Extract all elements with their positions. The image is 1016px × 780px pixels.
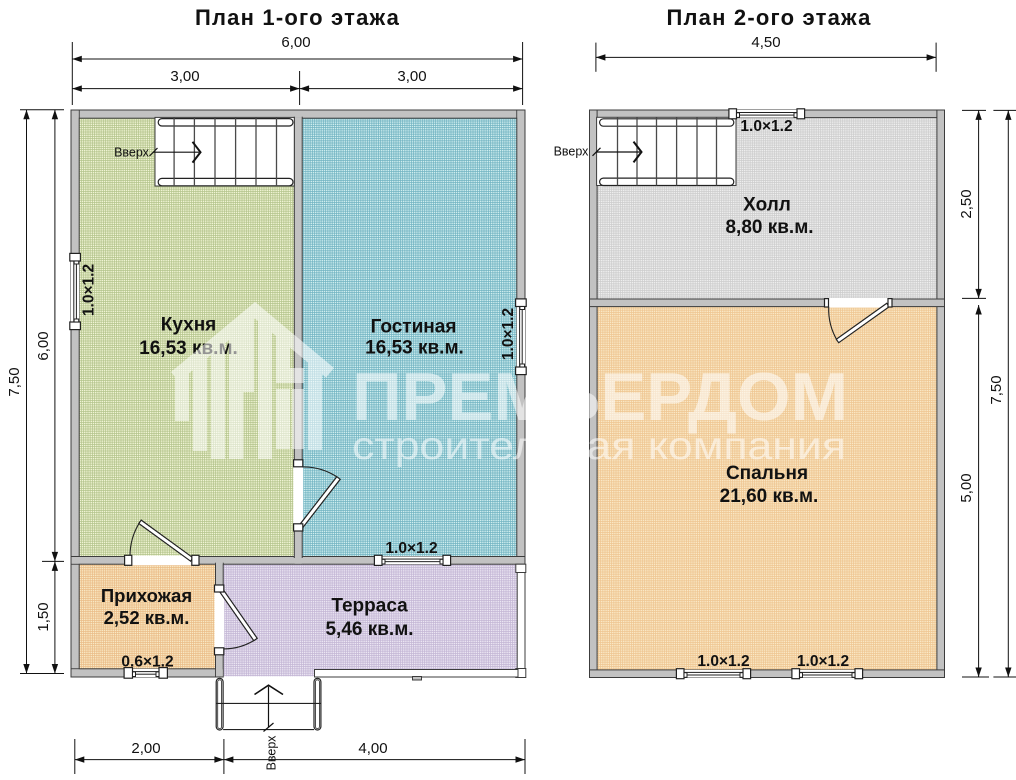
svg-text:Кухня: Кухня (161, 315, 217, 336)
svg-text:Вверх: Вверх (114, 145, 150, 159)
svg-text:8,80 кв.м.: 8,80 кв.м. (725, 217, 813, 238)
svg-text:1.0×1.2: 1.0×1.2 (81, 264, 98, 316)
svg-text:строительная компания: строительная компания (352, 425, 846, 468)
svg-text:1.0×1.2: 1.0×1.2 (740, 118, 792, 135)
svg-text:0.6×1.2: 0.6×1.2 (121, 654, 173, 671)
svg-text:7,50: 7,50 (988, 375, 1005, 404)
svg-text:3,00: 3,00 (397, 68, 426, 85)
svg-text:4,00: 4,00 (358, 740, 387, 757)
svg-text:Прихожая: Прихожая (101, 585, 192, 606)
svg-text:1,50: 1,50 (35, 602, 52, 631)
svg-text:2,50: 2,50 (958, 189, 975, 218)
svg-text:1.0×1.2: 1.0×1.2 (385, 540, 437, 557)
svg-text:4,50: 4,50 (751, 34, 780, 51)
svg-text:Вверх: Вверх (554, 145, 590, 159)
svg-text:6,00: 6,00 (281, 34, 310, 51)
svg-text:16,53 кв.м.: 16,53 кв.м. (365, 338, 464, 359)
svg-text:3,00: 3,00 (170, 68, 199, 85)
svg-text:ПРЕМЬЕРДОМ: ПРЕМЬЕРДОМ (352, 359, 848, 435)
svg-text:21,60 кв.м.: 21,60 кв.м. (720, 486, 819, 507)
svg-text:Вверх: Вверх (265, 735, 279, 771)
svg-text:1.0×1.2: 1.0×1.2 (797, 653, 849, 670)
svg-text:1.0×1.2: 1.0×1.2 (697, 653, 749, 670)
svg-text:5,00: 5,00 (958, 473, 975, 502)
svg-text:6,00: 6,00 (35, 331, 52, 360)
svg-text:2,52 кв.м.: 2,52 кв.м. (104, 607, 190, 628)
svg-text:7,50: 7,50 (6, 367, 23, 396)
svg-text:Гостиная: Гостиная (371, 317, 457, 338)
svg-text:2,00: 2,00 (131, 740, 160, 757)
svg-text:Терраса: Терраса (331, 596, 408, 617)
svg-text:План 1-ого этажа: План 1-ого этажа (195, 5, 400, 30)
svg-text:1.0×1.2: 1.0×1.2 (500, 308, 517, 360)
svg-text:Холл: Холл (743, 195, 791, 216)
svg-text:План 2-ого этажа: План 2-ого этажа (666, 5, 871, 30)
svg-text:5,46 кв.м.: 5,46 кв.м. (325, 619, 413, 640)
